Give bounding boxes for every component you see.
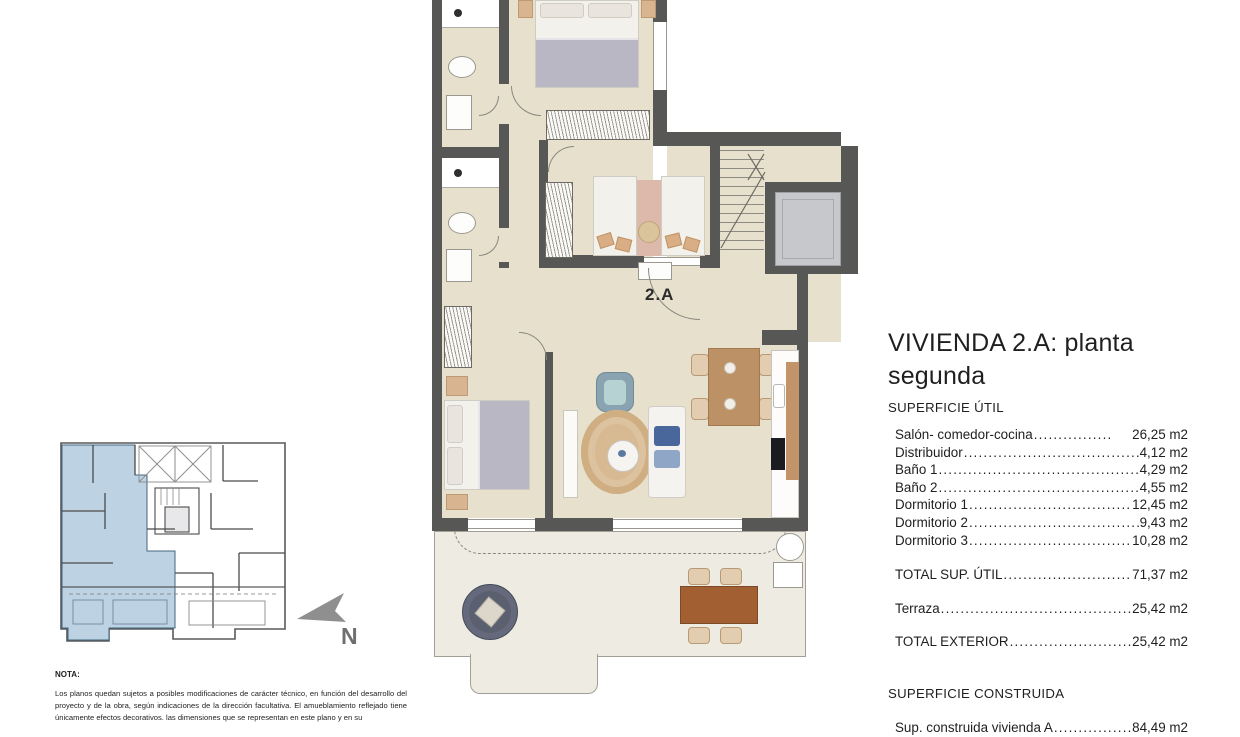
- desk: [446, 376, 468, 396]
- wall: [499, 262, 509, 268]
- wall: [432, 518, 468, 531]
- wall: [432, 0, 442, 531]
- area-row: Baño 1 .................................…: [888, 461, 1188, 479]
- oven: [771, 438, 785, 470]
- shower-1: [442, 0, 499, 28]
- sink-1: [446, 95, 472, 130]
- kitchen-sink: [773, 384, 785, 408]
- sliding-window: [468, 519, 535, 529]
- stair-direction-arrow: [718, 146, 770, 256]
- shower-head-icon: [454, 9, 462, 17]
- area-row: Dormitorio 1 ...........................…: [888, 496, 1188, 514]
- area-row: Dormitorio 2 ...........................…: [888, 514, 1188, 532]
- place-setting: [724, 362, 736, 374]
- dining-table: [708, 348, 760, 426]
- north-label: N: [341, 623, 358, 648]
- wall: [653, 132, 841, 146]
- area-row: Dormitorio 3 ...........................…: [888, 532, 1188, 550]
- planter: [776, 533, 804, 561]
- sofa-cushion: [654, 426, 680, 446]
- total-exterior-row: TOTAL EXTERIOR .........................…: [888, 633, 1188, 651]
- wall: [742, 518, 808, 531]
- pouf: [638, 221, 660, 243]
- note-heading: NOTA:: [55, 670, 407, 679]
- dining-chair: [691, 354, 709, 376]
- place-setting: [724, 398, 736, 410]
- rug-runner: [637, 180, 661, 256]
- areas-panel: VIVIENDA 2.A: planta segunda SUPERFICIE …: [888, 327, 1188, 737]
- sliding-door: [613, 519, 742, 529]
- superficie-util-table: Salón- comedor-cocina ..................…: [888, 426, 1188, 549]
- floor-plan-sheet: { "plan": { "unit_label": "2.A" }, "comp…: [0, 0, 1240, 726]
- wardrobe: [546, 110, 650, 140]
- toilet-2: [448, 212, 476, 234]
- terrace-chair: [720, 627, 742, 644]
- bedside-table: [446, 494, 468, 510]
- page-title: VIVIENDA 2.A: planta segunda: [888, 327, 1188, 393]
- terrace-bump: [470, 654, 598, 694]
- sink-2: [446, 249, 472, 282]
- sofa-cushion: [654, 450, 680, 468]
- wall: [499, 0, 509, 84]
- stair-core: [155, 488, 199, 534]
- nightstand: [518, 0, 533, 18]
- legal-note: NOTA: Los planos quedan sujetos a posibl…: [55, 670, 407, 723]
- total-util-row: TOTAL SUP. ÚTIL ........................…: [888, 566, 1188, 584]
- wall: [700, 255, 710, 268]
- wall: [535, 518, 613, 531]
- pillow: [588, 3, 632, 18]
- wall: [499, 124, 509, 228]
- apartment-floor-plan: 2.A: [432, 0, 858, 700]
- wardrobe: [545, 182, 573, 258]
- wall: [545, 352, 553, 518]
- terrace-table: [680, 586, 758, 624]
- blanket: [536, 38, 638, 87]
- shower-head-icon: [454, 169, 462, 177]
- key-plan: [53, 433, 293, 651]
- window: [653, 22, 667, 90]
- table-decor: [618, 450, 626, 457]
- superficie-util-heading: SUPERFICIE ÚTIL: [888, 400, 1188, 415]
- tv-unit: [563, 410, 578, 498]
- note-body: Los planos quedan sujetos a posibles mod…: [55, 688, 407, 723]
- north-arrow-icon: N: [296, 592, 366, 648]
- north-arrow-shape: [297, 593, 346, 622]
- kitchen-counter: [786, 362, 799, 480]
- area-row: Baño 2 .................................…: [888, 479, 1188, 497]
- pillow: [447, 447, 463, 485]
- construida-row: Sup. construida vivienda A .............…: [888, 719, 1188, 737]
- terraza-row: Terraza ................................…: [888, 600, 1188, 618]
- shower-2: [442, 158, 499, 188]
- pillow: [447, 405, 463, 443]
- blanket: [478, 401, 529, 489]
- unit-label: 2.A: [645, 285, 674, 305]
- nightstand: [641, 0, 656, 18]
- wardrobe: [444, 306, 472, 368]
- terrace-chair: [688, 627, 710, 644]
- area-row: Salón- comedor-cocina ..................…: [888, 426, 1188, 444]
- superficie-construida-heading: SUPERFICIE CONSTRUIDA: [888, 686, 1188, 701]
- pillow: [540, 3, 584, 18]
- elevator-cab-inner: [782, 199, 834, 259]
- wall: [432, 147, 509, 158]
- terrace-chair: [720, 568, 742, 585]
- terrace-chair: [688, 568, 710, 585]
- toilet-1: [448, 56, 476, 78]
- dining-chair: [691, 398, 709, 420]
- outdoor-cabinet: [773, 562, 803, 588]
- armchair-seat: [604, 380, 626, 405]
- area-row: Distribuidor ...........................…: [888, 444, 1188, 462]
